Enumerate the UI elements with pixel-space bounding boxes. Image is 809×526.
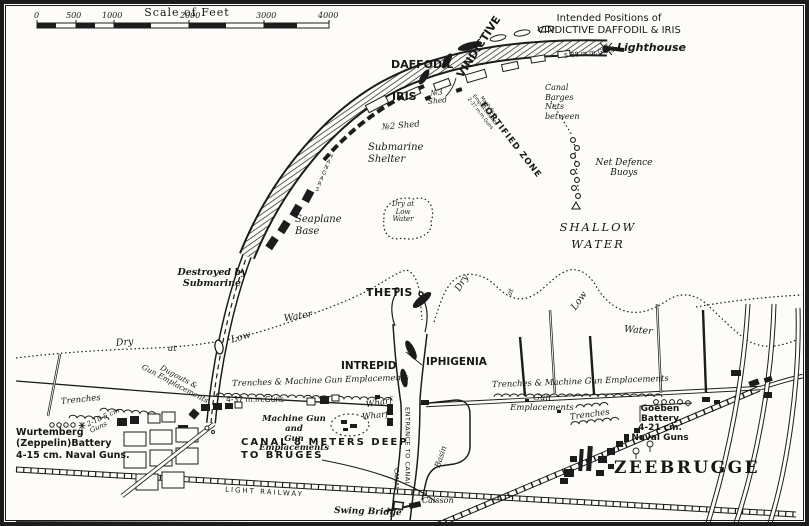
canal-vertical-label: CANAL [392, 468, 399, 498]
thetis-label: THETIS [366, 287, 413, 300]
shallow-water-label: SHALLOW WATER [550, 219, 646, 254]
canal-barges-label: Canal Barges Nets between [545, 83, 580, 121]
caisson-label: Caisson [422, 496, 454, 505]
dry-west-label: Dry [116, 337, 134, 349]
right-roads [706, 304, 798, 526]
scale-tick-3000: 3000 [256, 11, 276, 20]
zeebrugge-label: ZEEBRUGGE [614, 459, 760, 479]
scale-tick-2000: 2000 [180, 11, 200, 20]
intrepid-ship [404, 340, 419, 361]
caisson-mark [410, 502, 421, 508]
destroyed-by-submarine-label: Destroyed by Submarine [169, 268, 255, 290]
zeebrugge-raid-map: Scale of Feet 0 500 1000 2000 3000 4000 … [0, 0, 809, 526]
intended-positions-label: Intended Positions of VINDICTIVE DAFFODI… [509, 13, 709, 36]
at-west-label: at [168, 345, 176, 355]
dry-island-label: Dry at Low Water [380, 201, 426, 224]
net-defence-buoys-chain [571, 138, 581, 209]
net-defence-buoys-label: Net Defence Buoys [589, 158, 659, 179]
scale-tick-1000: 1000 [102, 11, 122, 20]
scale-tick-500: 500 [66, 11, 81, 20]
intrepid-label: INTREPID [341, 360, 396, 372]
wurtemberg-battery-label: Wurtemberg (Zeppelin)Battery 4-15 cm. Na… [16, 427, 130, 461]
low-water-lines [16, 101, 802, 358]
iphigenia-label: IPHIGENIA [426, 356, 487, 368]
submarine-shelter-label: Submarine Shelter [368, 142, 423, 165]
iris-label: IRIS [392, 91, 417, 104]
goeben-battery-label: Goeben Battery 4-21 cm. Naval Guns [627, 405, 693, 444]
scale-tick-4000: 4000 [318, 11, 338, 20]
canal-8-meters-label: CANAL 8 METERS DEEP TO BRUGES [241, 437, 409, 462]
daffodil-label: DAFFODIL [391, 59, 453, 72]
seaplane-base-label: Seaplane Base [295, 214, 342, 237]
scale-tick-0: 0 [34, 11, 39, 20]
lighthouse-label: Lighthouse [617, 42, 686, 55]
shed3-label: №3 Shed [421, 87, 452, 106]
gun-emplacements-east-label: Gun Emplacements [509, 394, 575, 414]
guns-437-label: 4-37 m.m.Guns [226, 396, 284, 405]
scale-bar [37, 20, 329, 28]
shore-lines [16, 376, 803, 406]
